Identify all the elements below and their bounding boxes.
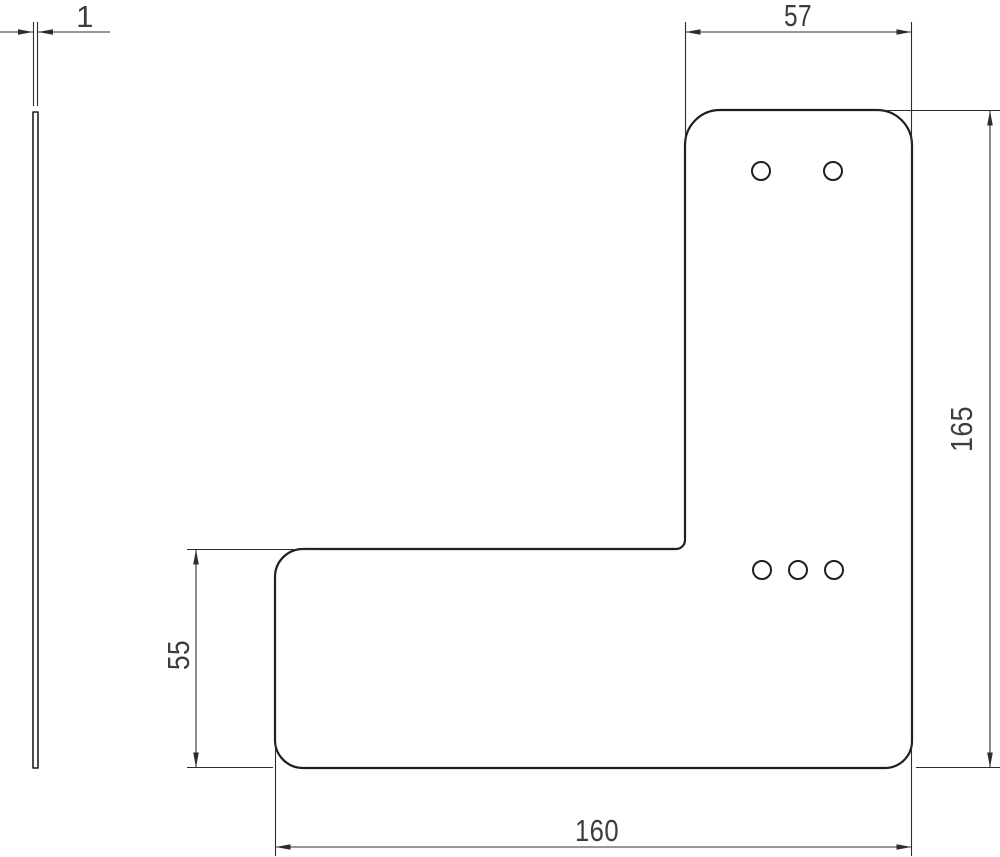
top-width-label: 57 — [784, 0, 812, 33]
height-arrowhead-bottom — [987, 753, 993, 768]
hole-top-2 — [824, 162, 842, 180]
side-view-strip — [33, 112, 38, 768]
height-arrowhead-top — [987, 111, 993, 126]
front-view-outline — [275, 110, 912, 768]
bottom-width-arrowhead-left — [276, 844, 291, 850]
technical-drawing: 1 57 165 55 160 — [0, 0, 1000, 857]
bottom-width-label: 160 — [575, 813, 619, 848]
hole-top-1 — [752, 162, 770, 180]
thickness-arrowhead-left — [18, 29, 33, 35]
hole-bottom-1 — [753, 561, 771, 579]
step-height-arrowhead-top — [193, 550, 199, 565]
drawing-canvas: 1 57 165 55 160 — [0, 0, 1000, 857]
top-width-arrowhead-right — [897, 29, 912, 35]
hole-bottom-2 — [789, 561, 807, 579]
step-height-label: 55 — [161, 640, 196, 670]
thickness-label: 1 — [76, 0, 94, 34]
hole-bottom-3 — [825, 561, 843, 579]
bottom-width-arrowhead-right — [897, 844, 912, 850]
thickness-arrowhead-right — [38, 29, 53, 35]
step-height-arrowhead-bottom — [193, 753, 199, 768]
overall-height-label: 165 — [944, 406, 979, 452]
top-width-arrowhead-left — [686, 29, 701, 35]
